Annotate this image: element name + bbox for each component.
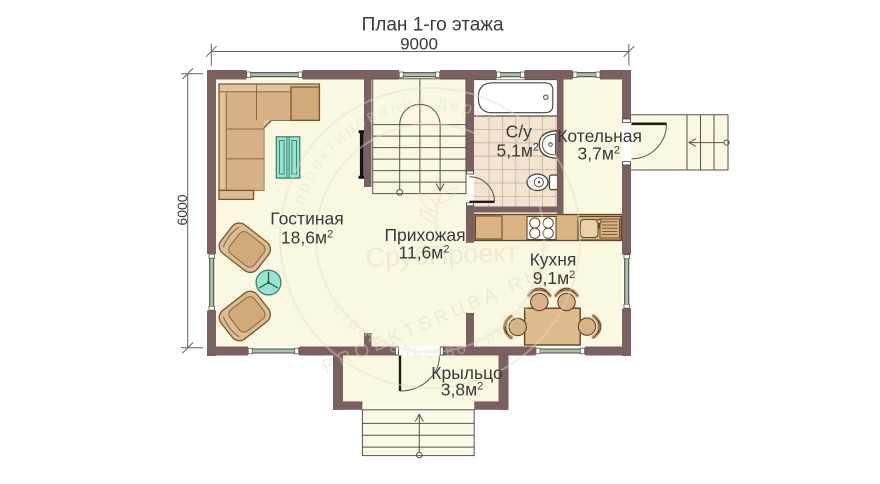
svg-text:Кухня: Кухня	[530, 250, 577, 270]
svg-text:9000: 9000	[400, 35, 438, 54]
svg-text:5,1м2: 5,1м2	[497, 141, 539, 161]
svg-text:3,8м2: 3,8м2	[441, 380, 483, 400]
svg-text:6000: 6000	[174, 194, 190, 225]
svg-text:3,7м2: 3,7м2	[578, 144, 620, 164]
svg-text:11,6м2: 11,6м2	[399, 243, 450, 263]
svg-text:План 1-го этажа: План 1-го этажа	[362, 15, 504, 36]
svg-text:9,1м2: 9,1м2	[533, 268, 575, 288]
svg-text:Гостиная: Гостиная	[270, 209, 343, 229]
svg-text:С/у: С/у	[506, 122, 533, 142]
svg-text:18,6м2: 18,6м2	[281, 228, 333, 248]
